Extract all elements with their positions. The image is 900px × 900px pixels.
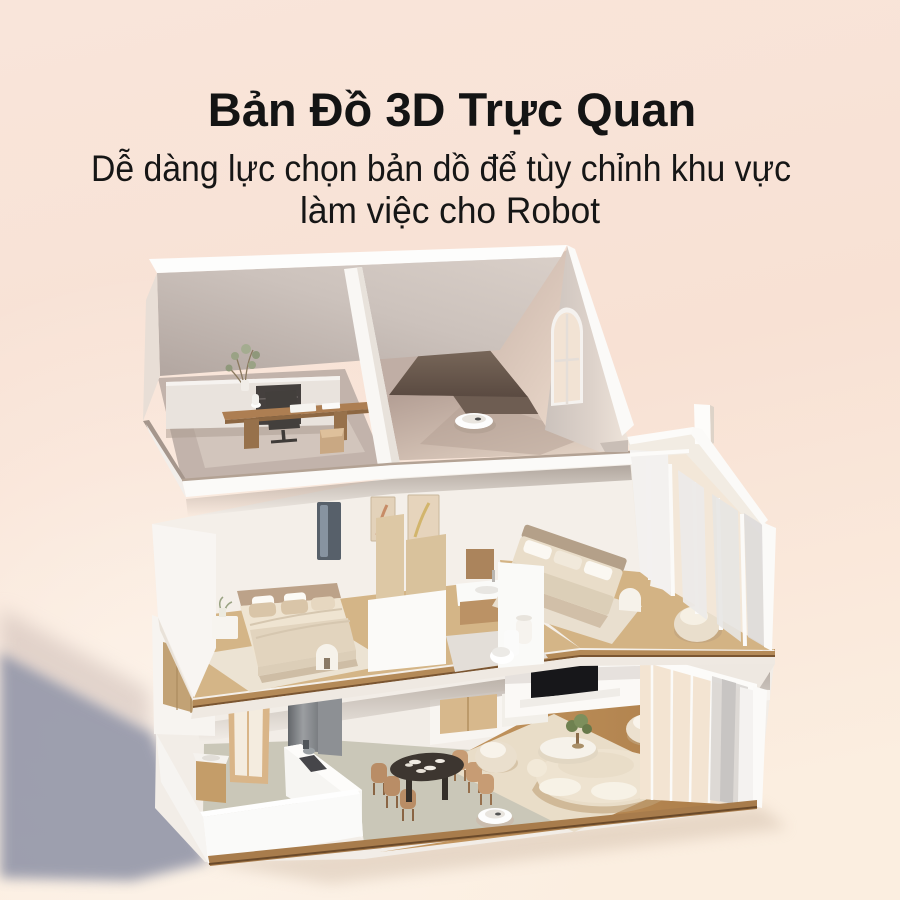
svg-text:làm việc cho Robot: làm việc cho Robot <box>300 190 601 231</box>
svg-text:Bản Đồ 3D Trực Quan: Bản Đồ 3D Trực Quan <box>208 83 696 136</box>
svg-text:Dễ dàng lực chọn bản dồ để tùy: Dễ dàng lực chọn bản dồ để tùy chỉnh khu… <box>91 148 791 189</box>
